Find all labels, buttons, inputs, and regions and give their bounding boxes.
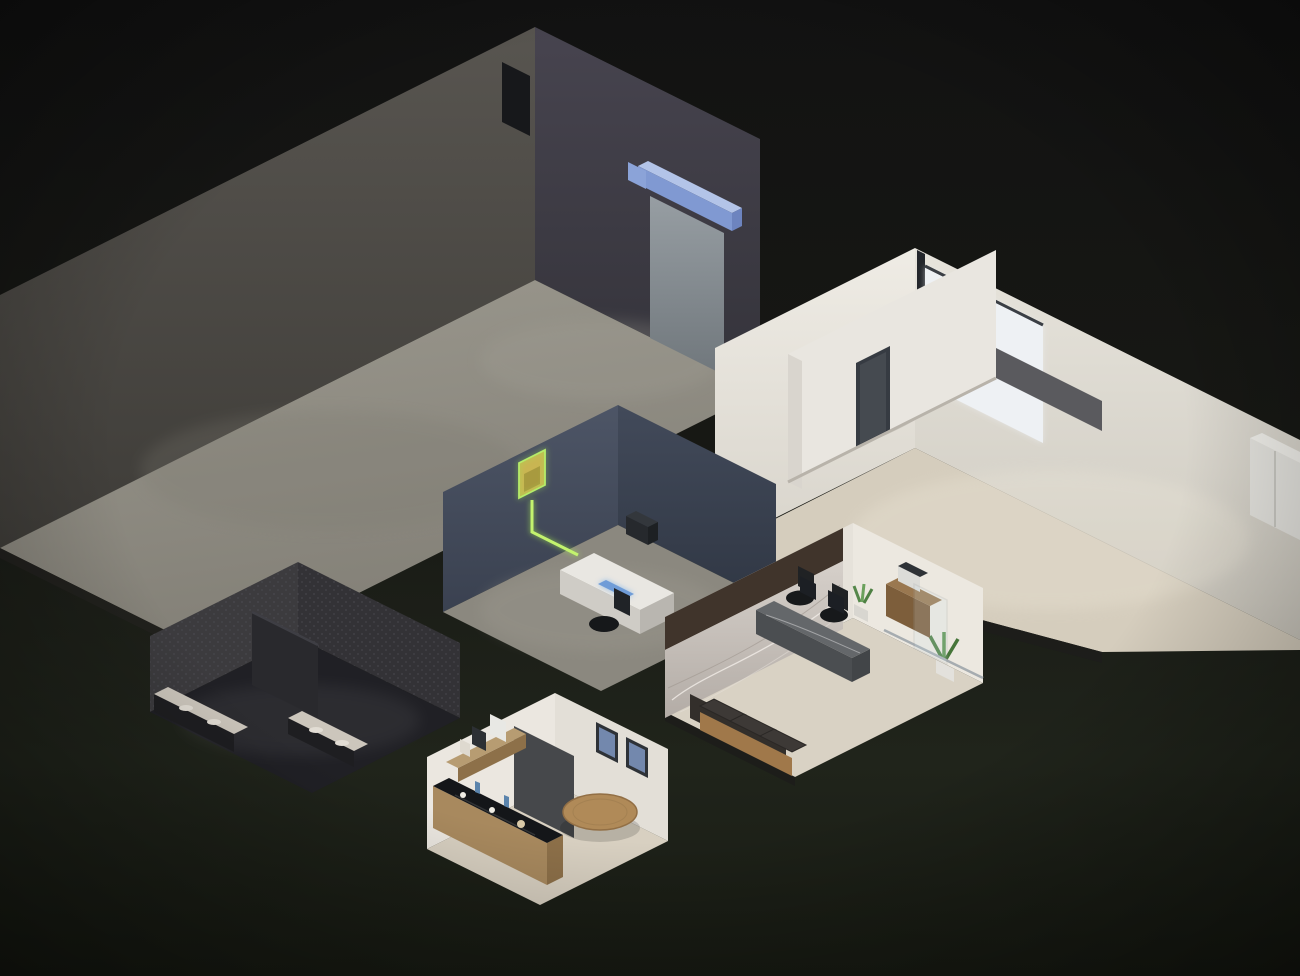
scene-canvas <box>0 0 1300 976</box>
vignette <box>0 0 1300 976</box>
isometric-facility-scene <box>0 0 1300 976</box>
